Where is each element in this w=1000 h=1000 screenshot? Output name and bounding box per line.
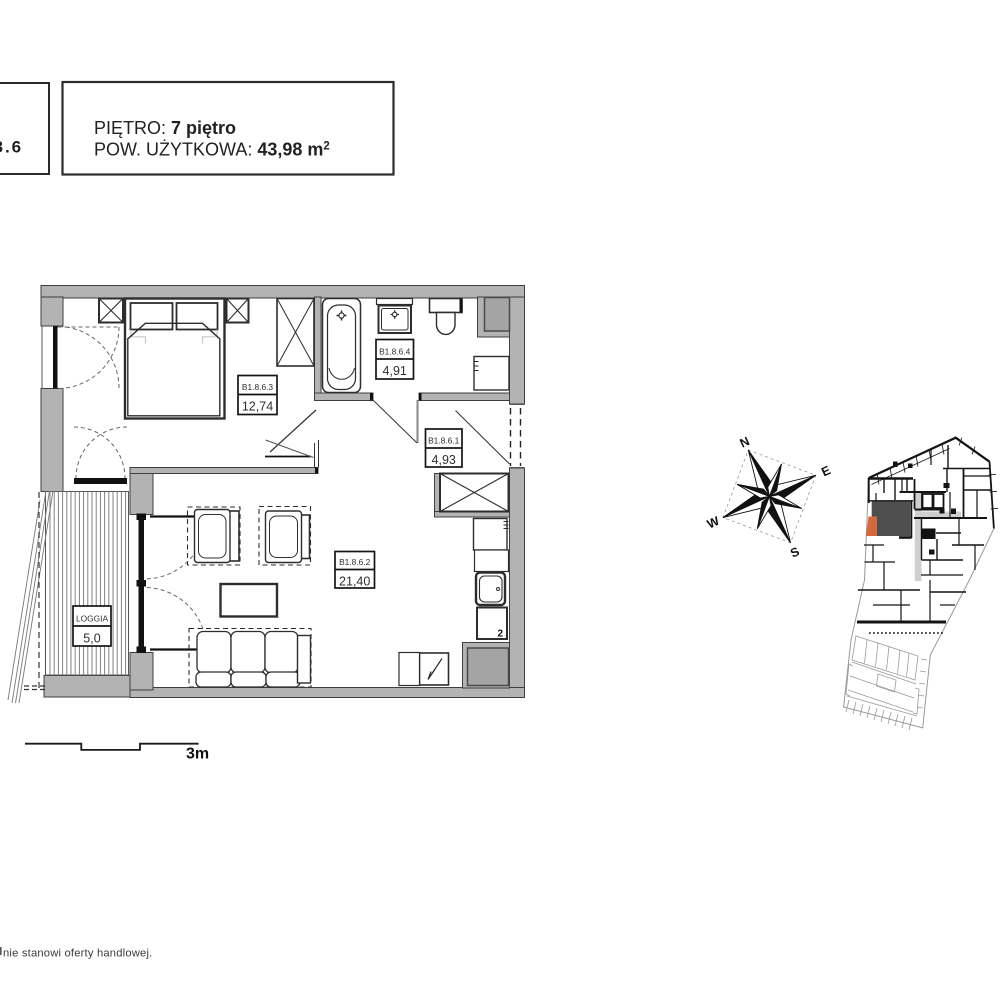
svg-text:W: W	[705, 514, 722, 532]
svg-text:3m: 3m	[186, 746, 209, 763]
svg-text:N: N	[738, 434, 752, 450]
svg-text:S: S	[788, 544, 801, 560]
svg-text:PIĘTRO: 7 piętro: PIĘTRO: 7 piętro	[94, 118, 236, 138]
svg-text:4,93: 4,93	[432, 453, 456, 467]
svg-text:B1.8.6.4: B1.8.6.4	[379, 347, 411, 357]
svg-text:LOGGIA: LOGGIA	[76, 614, 109, 624]
svg-text:12,74: 12,74	[242, 400, 273, 414]
svg-text:4,91: 4,91	[383, 364, 407, 378]
svg-text:5,0: 5,0	[83, 632, 100, 646]
svg-text:nie stanowi oferty handlowej.: nie stanowi oferty handlowej.	[3, 948, 152, 960]
svg-text:B1.8.6.3: B1.8.6.3	[242, 382, 274, 392]
svg-text:8.6: 8.6	[0, 138, 23, 157]
svg-text:POW. UŻYTKOWA: 43,98 m2: POW. UŻYTKOWA: 43,98 m2	[94, 140, 330, 160]
svg-text:21,40: 21,40	[339, 575, 370, 589]
svg-text:B1.8.6.2: B1.8.6.2	[339, 557, 371, 567]
svg-text:B1.8.6.1: B1.8.6.1	[428, 436, 460, 446]
svg-text:E: E	[819, 463, 832, 479]
svg-text:2: 2	[498, 629, 504, 640]
